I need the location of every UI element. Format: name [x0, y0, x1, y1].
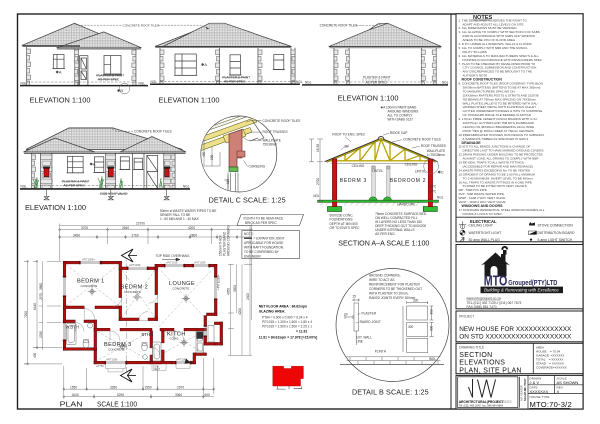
- svg-text:75X38mm: 75X38mm: [263, 143, 278, 147]
- svg-text:CONCRETE: CONCRETE: [81, 284, 98, 288]
- svg-text:CEILING: CEILING: [352, 164, 365, 168]
- svg-text:600: 600: [205, 393, 211, 397]
- svg-text:NET FLOOR AREA : 84.62sqm: NET FLOOR AREA : 84.62sqm: [259, 305, 307, 309]
- svg-text:PT84 = 0.900 x 0.900 = 0.24: PT84 = 0.900 x 0.900 = 0.24 x 4: [262, 316, 308, 320]
- svg-text:2970: 2970: [177, 385, 184, 389]
- svg-text:STOVE CONNECTION: STOVE CONNECTION: [538, 223, 574, 227]
- svg-text:DETAIL C SCALE: 1:25: DETAIL C SCALE: 1:25: [209, 196, 286, 205]
- svg-text:CORNERS TO BE THICKENED OUT: CORNERS TO BE THICKENED OUT: [369, 287, 422, 291]
- svg-text:ELEVATION 1:100: ELEVATION 1:100: [159, 96, 220, 105]
- svg-text:SCALE 1:100: SCALE 1:100: [97, 402, 137, 409]
- svg-text:4200: 4200: [238, 308, 242, 315]
- svg-text:Building & Renovating with Exc: Building & Renovating with Excellence: [484, 288, 559, 293]
- svg-text:= 11.81: = 11.81: [296, 330, 307, 334]
- svg-text:BEDROOM 2: BEDROOM 2: [390, 178, 426, 184]
- svg-text:ELEVATION 1:100: ELEVATION 1:100: [25, 203, 86, 212]
- svg-text:SECTION: SECTION: [459, 352, 492, 359]
- svg-text:REINFORCEMENT FOR PLASTER: REINFORCEMENT FOR PLASTER: [369, 283, 420, 287]
- svg-text:PIT1015 = 1.200 x 1.500 = 1.80: PIT1015 = 1.200 x 1.500 = 1.80 x 4: [262, 320, 312, 324]
- svg-text:CONCRETE: CONCRETE: [173, 287, 190, 291]
- svg-text:NGL: NGL: [437, 195, 444, 199]
- svg-text:16.38: 16.38: [316, 144, 320, 152]
- svg-text:NGL: NGL: [296, 80, 303, 84]
- svg-text:4350: 4350: [227, 288, 231, 295]
- svg-text:NGL: NGL: [442, 81, 449, 85]
- svg-text:2400: 2400: [246, 293, 250, 300]
- svg-text:CONCRETE: CONCRETE: [124, 290, 141, 294]
- svg-text:CONCRETE ROOF TILES: CONCRETE ROOF TILES: [320, 24, 358, 28]
- svg-text:1 : 60 MIN AND 1 : 40 MAX: 1 : 60 MIN AND 1 : 40 MAX: [160, 217, 200, 221]
- svg-text:ROOF TRUSSES: ROOF TRUSSES: [263, 130, 288, 134]
- svg-text:CONCRETE ROOF TILES: CONCRETE ROOF TILES: [263, 119, 301, 123]
- svg-text:BRICK AS PER SPEC: BRICK AS PER SPEC: [245, 221, 277, 225]
- svg-text:2700: 2700: [316, 178, 320, 185]
- svg-text:2640: 2640: [122, 226, 129, 230]
- svg-text:3500: 3500: [233, 285, 237, 292]
- svg-text:WIRE TO ACT AS: WIRE TO ACT AS: [369, 278, 395, 282]
- svg-text:1640: 1640: [72, 393, 79, 397]
- svg-text:WITH SABS 0137: WITH SABS 0137: [388, 118, 414, 122]
- svg-text:3450: 3450: [73, 233, 80, 237]
- svg-text:NGL: NGL: [21, 185, 28, 189]
- svg-text:CEILING LIGHT: CEILING LIGHT: [469, 223, 494, 227]
- svg-text:ELEVATION 1:100: ELEVATION 1:100: [338, 94, 399, 103]
- svg-text:ELEVATIONS: ELEVATIONS: [459, 360, 505, 367]
- svg-text:HARDCORE: HARDCORE: [397, 202, 415, 206]
- svg-text:330: 330: [413, 299, 419, 303]
- svg-text:20: 20: [344, 313, 348, 317]
- svg-text:NOTE:: NOTE:: [244, 232, 254, 236]
- svg-text:PLINTH: PLINTH: [375, 350, 387, 354]
- svg-text:1550: 1550: [70, 385, 77, 389]
- svg-text:3700: 3700: [81, 226, 88, 230]
- svg-text:5290: 5290: [117, 393, 124, 397]
- svg-text:DETAIL B SCALE: 1:25: DETAIL B SCALE: 1:25: [352, 388, 429, 397]
- svg-text:ROOF TRUSSES: ROOF TRUSSES: [421, 144, 446, 148]
- svg-text:CORBLING: CORBLING: [249, 165, 266, 169]
- svg-text:SECTION A–A SCALE 1:100: SECTION A–A SCALE 1:100: [338, 240, 429, 248]
- svg-text:2970: 2970: [39, 293, 43, 300]
- svg-text:www.mtogrouped.co.za: www.mtogrouped.co.za: [467, 296, 501, 300]
- svg-text:5 amp LIGHT SWITCH: 5 amp LIGHT SWITCH: [538, 238, 573, 242]
- svg-text:WITH PLASTER TO 20mm.: WITH PLASTER TO 20mm.: [369, 292, 408, 296]
- svg-text:LINE: LINE: [356, 340, 363, 344]
- svg-text:DOORS & LOCKS TO SPEC: DOORS & LOCKS TO SPEC: [463, 212, 503, 216]
- svg-text:AROUND CORNERS: AROUND CORNERS: [227, 225, 231, 256]
- svg-text:+PIT1039: +PIT1039: [194, 261, 206, 265]
- svg-text:7200: 7200: [24, 311, 28, 318]
- svg-text:AS SHOWN: AS SHOWN: [557, 380, 579, 385]
- svg-text:DPC: DPC: [430, 184, 437, 188]
- svg-text:NGL: NGL: [313, 194, 320, 198]
- svg-text:✱B: ✱B: [117, 88, 123, 93]
- svg-text:J & V: J & V: [530, 380, 540, 385]
- svg-text:Tel: (011) 466 2642 fax: 086: Tel: (011) 466 2642 fax: 086 684 6864: [459, 404, 504, 408]
- svg-text:22700: 22700: [136, 222, 145, 226]
- svg-text:180: 180: [210, 154, 214, 160]
- svg-text:✱C: ✱C: [438, 170, 444, 175]
- svg-text:+PIT1036: +PIT1036: [106, 358, 118, 362]
- svg-text:300: 300: [408, 325, 414, 329]
- svg-text:SERVICES: SERVICES: [495, 400, 512, 404]
- svg-text:NGL: NGL: [139, 82, 146, 86]
- svg-text:W.BTH: W.BTH: [66, 325, 79, 330]
- svg-text:CONCRETE ROOF TILES: CONCRETE ROOF TILES: [134, 129, 172, 133]
- svg-text:RAKED JOINT: RAKED JOINT: [360, 320, 381, 324]
- svg-text:ENGINEER: ENGINEER: [244, 255, 261, 259]
- svg-text:MTO:70-3/2: MTO:70-3/2: [530, 400, 572, 409]
- svg-text:= EXPANTION JOINT: = EXPANTION JOINT: [254, 237, 285, 241]
- svg-text:AS PER ENG.: AS PER ENG.: [375, 232, 395, 236]
- svg-text:HOUSE TYPE: HOUSE TYPE: [530, 395, 550, 399]
- svg-text:X: X: [557, 389, 560, 394]
- svg-text:BEDRM 3: BEDRM 3: [340, 178, 367, 184]
- svg-text:PLINTH TO BE SEMI-FACE: PLINTH TO BE SEMI-FACE: [244, 216, 284, 220]
- svg-text:PROJECT: PROJECT: [459, 315, 474, 319]
- svg-text:✱A: ✱A: [56, 70, 62, 75]
- svg-text:6440: 6440: [33, 303, 37, 310]
- svg-text:450: 450: [202, 151, 206, 157]
- svg-text:NGL: NGL: [183, 185, 190, 189]
- svg-text:AS PER SPEC: AS PER SPEC: [366, 81, 388, 85]
- svg-text:RAKED JOINTS EVERY 300mm: RAKED JOINTS EVERY 300mm: [369, 296, 416, 300]
- svg-text:2330: 2330: [39, 331, 43, 338]
- svg-text:TO BE CONFIRMED BY: TO BE CONFIRMED BY: [244, 250, 280, 254]
- svg-text:NEW HOUSE FOR XXXXXXXXXXXXX: NEW HOUSE FOR XXXXXXXXXXXXX: [459, 326, 571, 333]
- svg-text:NGL: NGL: [21, 82, 28, 86]
- svg-text:LINTOL: LINTOL: [415, 170, 426, 174]
- svg-text:2760: 2760: [132, 233, 139, 237]
- svg-text:L=75X38mm: L=75X38mm: [427, 153, 446, 157]
- svg-text:GLAZING AREA:: GLAZING AREA:: [259, 310, 286, 314]
- svg-text:PIT1015 = 1.500 x 1.500 = 2.25: PIT1015 = 1.500 x 1.500 = 2.25 x 1: [262, 325, 312, 329]
- svg-text:AROUND CORNERS,: AROUND CORNERS,: [369, 274, 401, 278]
- svg-text:FAX:(086) 551 7471: FAX:(086) 551 7471: [467, 305, 497, 309]
- svg-text:Grouped(PTY)LTD: Grouped(PTY)LTD: [508, 278, 558, 287]
- svg-text:COVERAGE=XXXXXX: COVERAGE=XXXXXX: [536, 366, 567, 370]
- svg-text:3350: 3350: [110, 385, 117, 389]
- svg-text:4200: 4200: [188, 226, 195, 230]
- svg-text:+PIT109: +PIT109: [176, 358, 186, 362]
- svg-text:RIDGE CAP: RIDGE CAP: [390, 131, 408, 135]
- svg-text:NGL: NGL: [151, 80, 158, 84]
- svg-text:3060: 3060: [175, 393, 182, 397]
- svg-text:A.P. VENTER: A.P. VENTER: [520, 385, 524, 401]
- svg-text:1550: 1550: [145, 385, 152, 389]
- svg-text:PLASTER: PLASTER: [362, 312, 377, 316]
- svg-text:PLASTER & PAINT: PLASTER & PAINT: [363, 76, 391, 80]
- svg-text:XXXXXXX: XXXXXXX: [530, 389, 549, 394]
- svg-text:BTH 1: BTH 1: [142, 332, 155, 337]
- svg-text:OR TO ENG'S SPEC: OR TO ENG'S SPEC: [330, 226, 361, 230]
- svg-text:3860: 3860: [39, 283, 43, 290]
- svg-text:ROOF TO ENG. SPEC: ROOF TO ENG. SPEC: [332, 133, 365, 137]
- svg-text:30 amp WALL PLUG: 30 amp WALL PLUG: [469, 238, 501, 242]
- svg-text:430: 430: [33, 352, 37, 358]
- svg-text:NGL: NGL: [305, 81, 312, 85]
- svg-text:300: 300: [430, 325, 434, 331]
- svg-text:DPC: DPC: [430, 189, 437, 193]
- svg-text:11.81 = 84.62sqm = 17.978 [>15: 11.81 = 84.62sqm = 17.978 [>15.00%]: [259, 336, 318, 340]
- svg-text:+PIT1039+: +PIT1039+: [82, 257, 95, 261]
- svg-text:CONC: CONC: [170, 337, 180, 341]
- svg-text:300: 300: [430, 309, 434, 315]
- svg-text:+PT56: +PT56: [96, 364, 104, 368]
- svg-text:DISTRIBUTION BOARD: DISTRIBUTION BOARD: [538, 231, 575, 235]
- svg-text:25: 25: [353, 295, 357, 299]
- svg-text:LINTOL: LINTOL: [372, 169, 383, 173]
- svg-text:ON STD XXXXXXXXXXXXXXXXXXXX: ON STD XXXXXXXXXXXXXXXXXXXX: [459, 334, 571, 341]
- svg-text:CONCRETE ROOF TILES: CONCRETE ROOF TILES: [403, 138, 441, 142]
- svg-text:110: 110: [226, 179, 230, 184]
- svg-text:PLAN, SITE PLAN: PLAN, SITE PLAN: [459, 367, 521, 374]
- svg-text:✱A: ✱A: [201, 62, 207, 67]
- svg-text:CONCRETE ROOF TILES: CONCRETE ROOF TILES: [123, 23, 160, 27]
- svg-text:✱A: ✱A: [90, 162, 96, 167]
- svg-text:CEILING: CEILING: [405, 162, 418, 166]
- svg-text:ELEVATION 1:100: ELEVATION 1:100: [30, 96, 91, 105]
- svg-text:TOP RIDE OVERHANG: TOP RIDE OVERHANG: [155, 254, 190, 258]
- svg-text:VENT: VENT: [153, 367, 160, 371]
- svg-text:WATERTIGHT LIGHT: WATERTIGHT LIGHT: [469, 231, 502, 235]
- svg-text:SACAP NR: T0047: SACAP NR: T0047: [523, 378, 527, 401]
- svg-text:DRAWING TITLE: DRAWING TITLE: [459, 346, 484, 350]
- svg-text:PLAN: PLAN: [60, 402, 83, 409]
- svg-text:+PIT1039: +PIT1039: [129, 263, 141, 267]
